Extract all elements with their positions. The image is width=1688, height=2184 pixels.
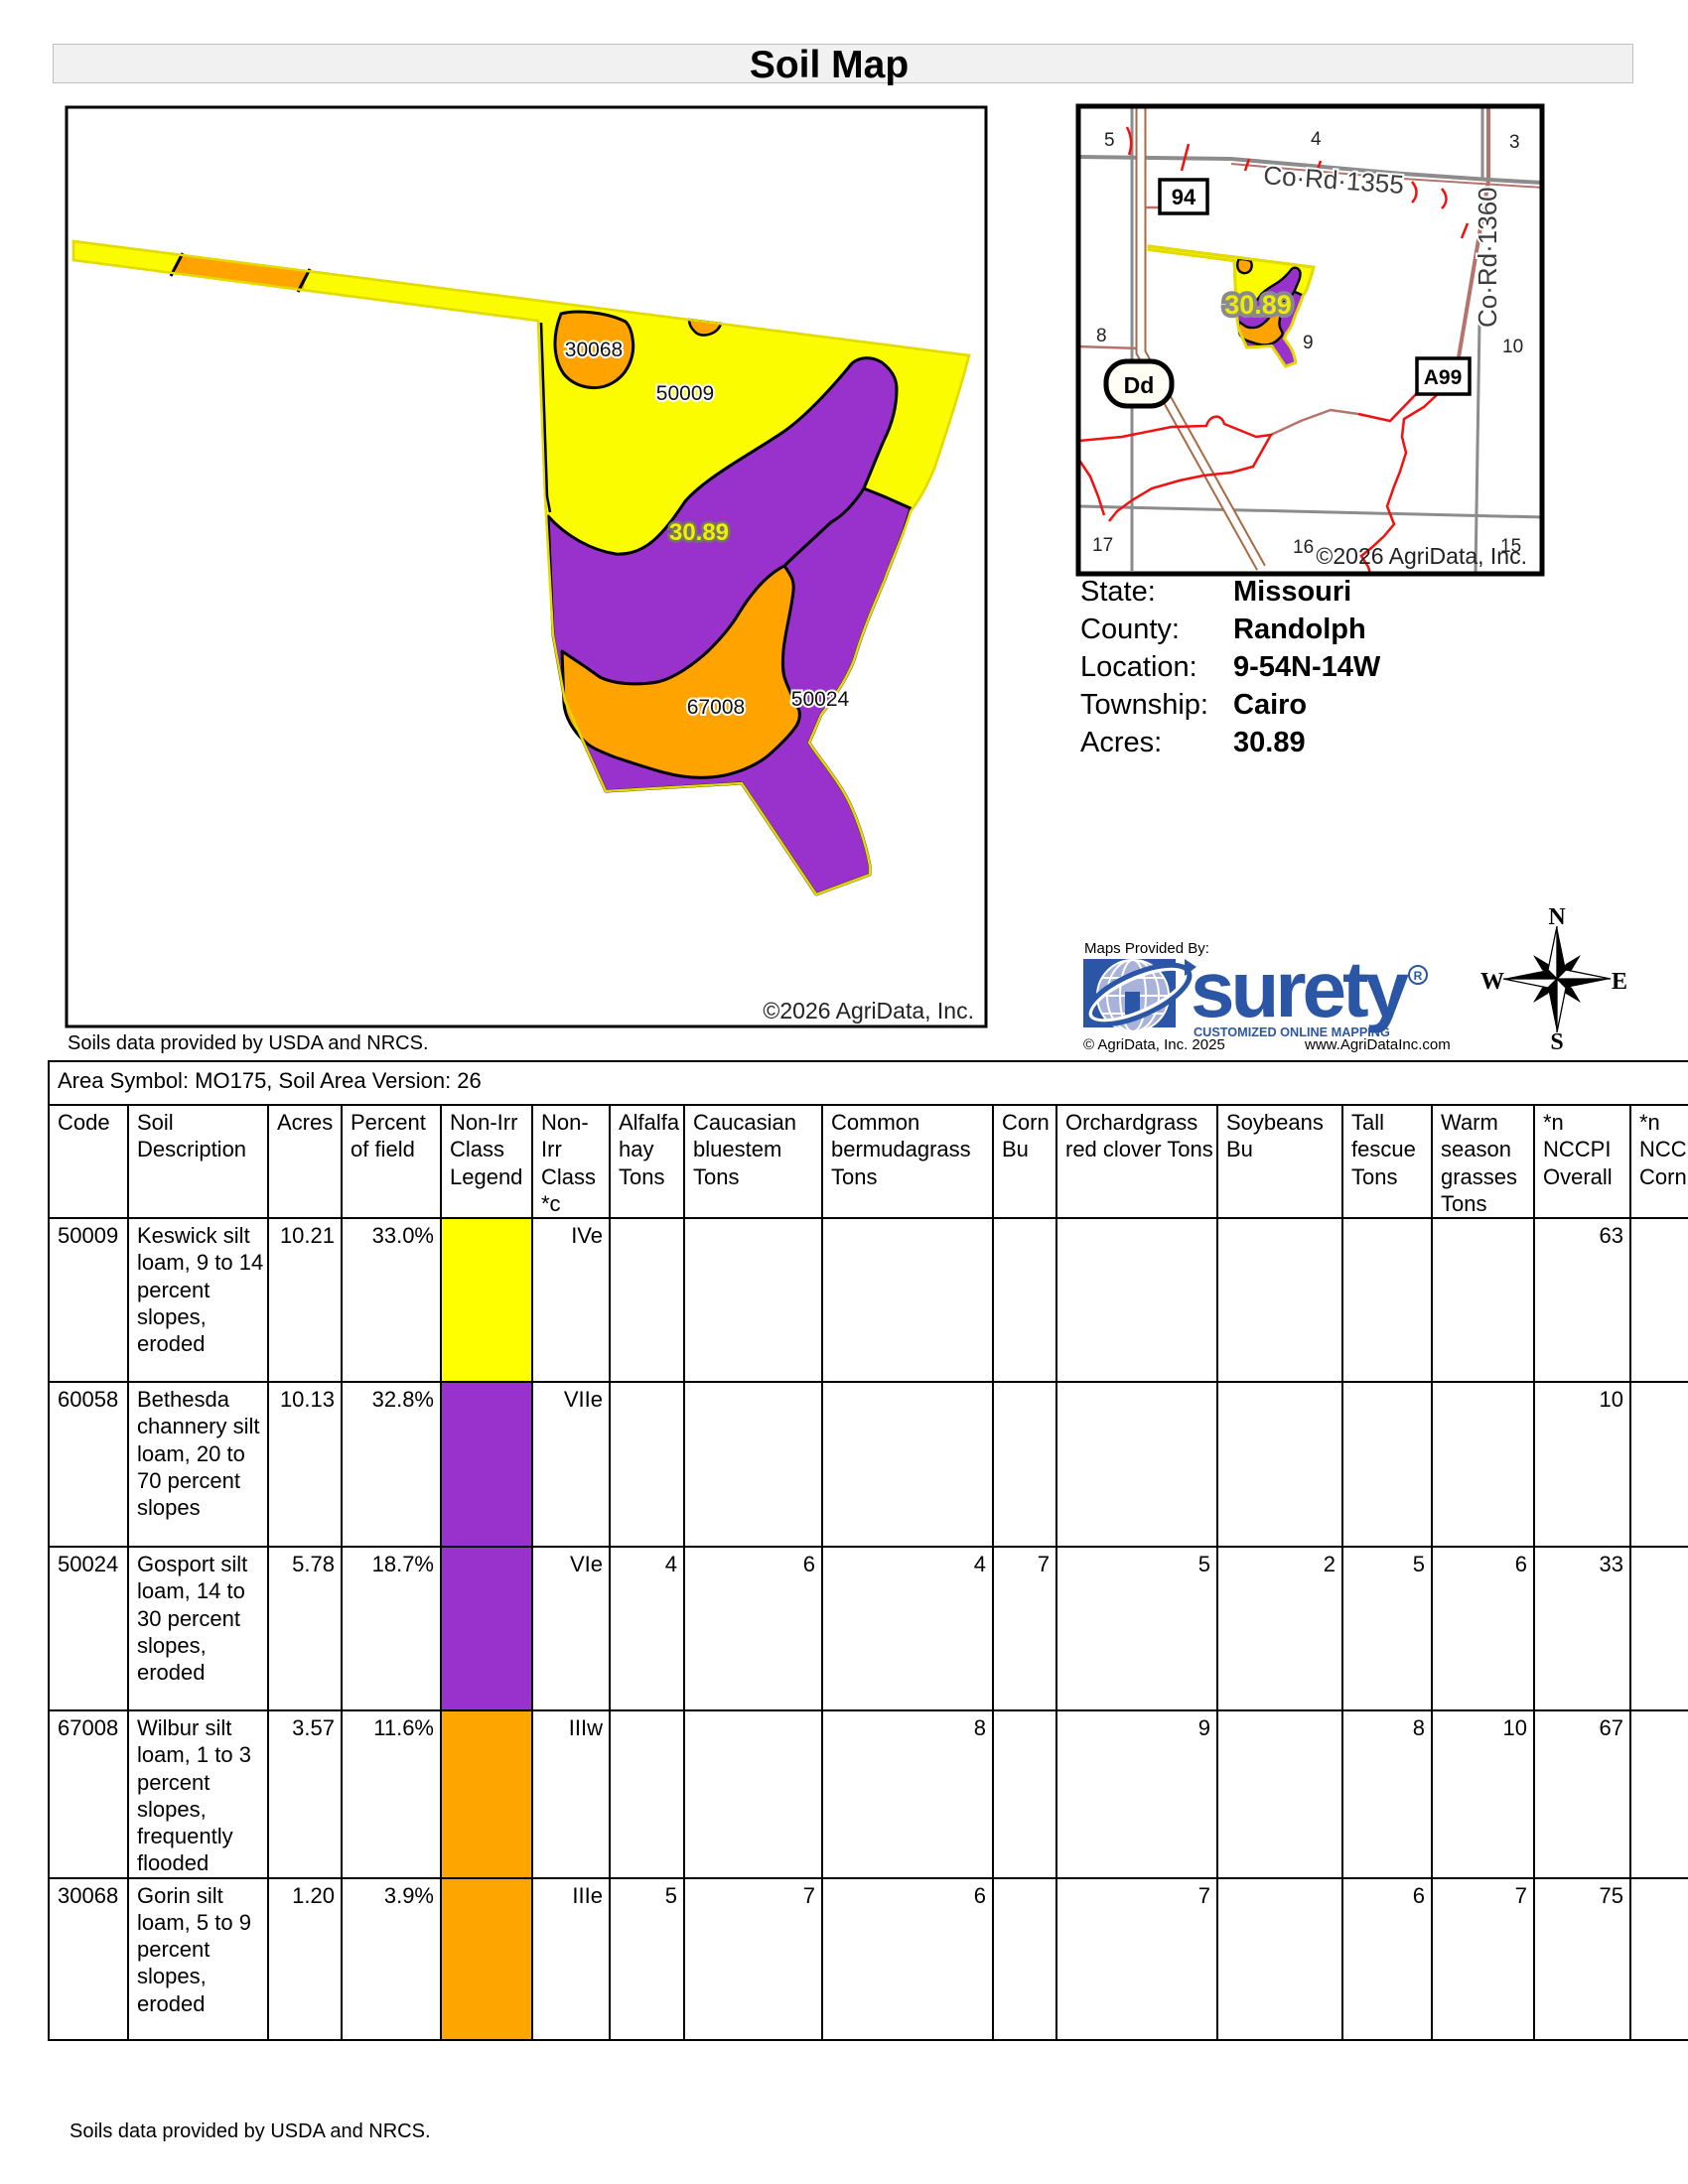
svg-text:Co·Rd·1355: Co·Rd·1355 [1262, 160, 1404, 200]
svg-text:30068: 30068 [565, 339, 623, 361]
svg-text:surety: surety [1191, 945, 1410, 1033]
svg-text:S: S [1550, 1029, 1563, 1055]
svg-text:50009: 50009 [656, 382, 714, 405]
svg-text:8: 8 [1096, 326, 1107, 346]
svg-text:17: 17 [1092, 535, 1113, 556]
svg-text:50024: 50024 [791, 688, 850, 711]
svg-text:A99: A99 [1424, 366, 1463, 389]
svg-text:©2026 AgriData, Inc.: ©2026 AgriData, Inc. [1316, 543, 1527, 569]
svg-text:94: 94 [1172, 185, 1196, 209]
svg-text:©2026 AgriData, Inc.: ©2026 AgriData, Inc. [763, 998, 974, 1024]
svg-text:E: E [1612, 969, 1627, 995]
svg-text:67008: 67008 [687, 696, 745, 719]
svg-text:W: W [1480, 969, 1504, 995]
svg-text:Co·Rd·1360: Co·Rd·1360 [1473, 187, 1502, 328]
svg-text:30.89: 30.89 [1224, 290, 1292, 320]
svg-text:4: 4 [1311, 129, 1322, 150]
svg-text:Dd: Dd [1124, 372, 1155, 398]
svg-text:30.89: 30.89 [669, 519, 729, 546]
svg-text:16: 16 [1293, 537, 1314, 558]
svg-text:N: N [1548, 904, 1566, 930]
svg-text:3: 3 [1509, 132, 1520, 153]
svg-text:9: 9 [1303, 333, 1314, 353]
svg-text:5: 5 [1104, 130, 1115, 151]
svg-text:R: R [1414, 969, 1423, 983]
svg-text:10: 10 [1502, 337, 1523, 357]
